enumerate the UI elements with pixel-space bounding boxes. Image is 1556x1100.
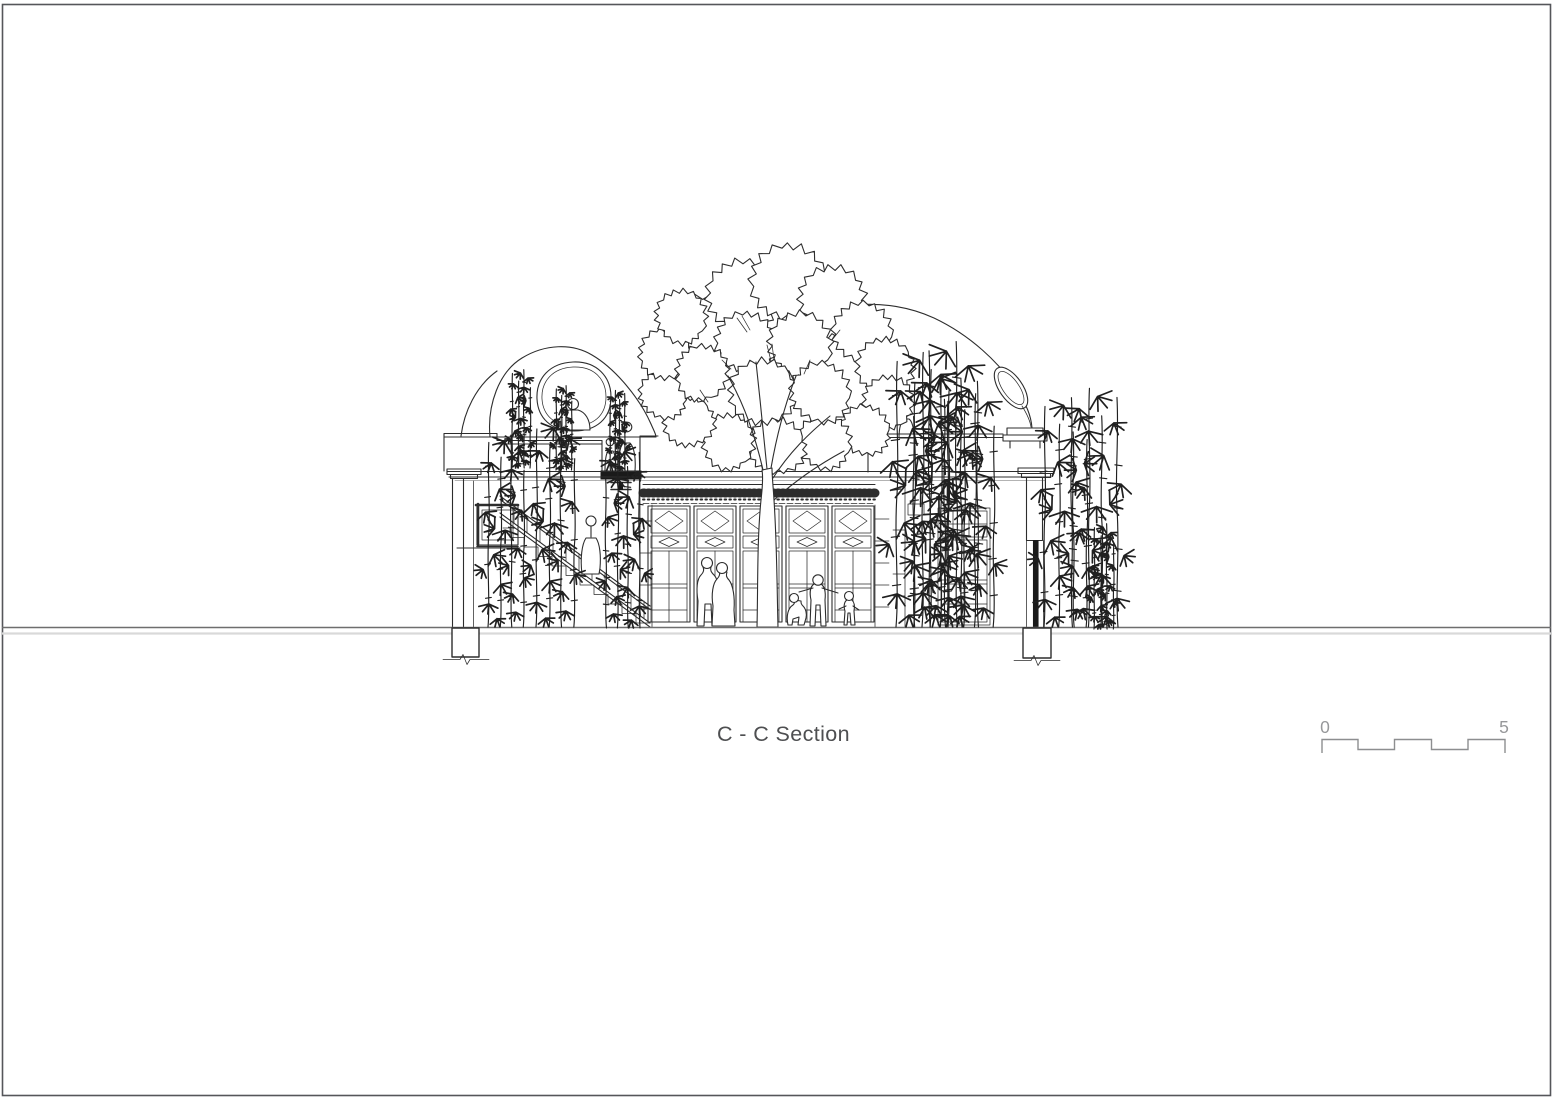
drawing-sheet: C - C Section 0 5 xyxy=(0,0,1556,1100)
cresting-frieze xyxy=(643,485,875,504)
scale-bar: 0 5 xyxy=(1320,717,1509,753)
scale-bar-rule xyxy=(1322,740,1505,754)
section-title: C - C Section xyxy=(717,722,850,746)
right-cut-column xyxy=(1018,468,1054,627)
scale-zero-label: 0 xyxy=(1320,717,1330,737)
figure-child-right xyxy=(839,592,859,626)
figure-on-stairs xyxy=(581,516,600,574)
tree xyxy=(629,233,926,627)
figure-child-crouching xyxy=(787,594,806,626)
scale-five-label: 5 xyxy=(1499,717,1509,737)
left-quoin-edge xyxy=(640,481,652,627)
cc-section-drawing: C - C Section 0 5 xyxy=(0,0,1556,1100)
wall-plaque xyxy=(908,504,924,515)
tree-canopy xyxy=(629,233,926,484)
bamboo-right-outside xyxy=(1024,386,1139,630)
right-quoin-pier xyxy=(875,481,905,627)
ground-line xyxy=(2,628,1551,634)
couple-figures xyxy=(697,558,735,627)
